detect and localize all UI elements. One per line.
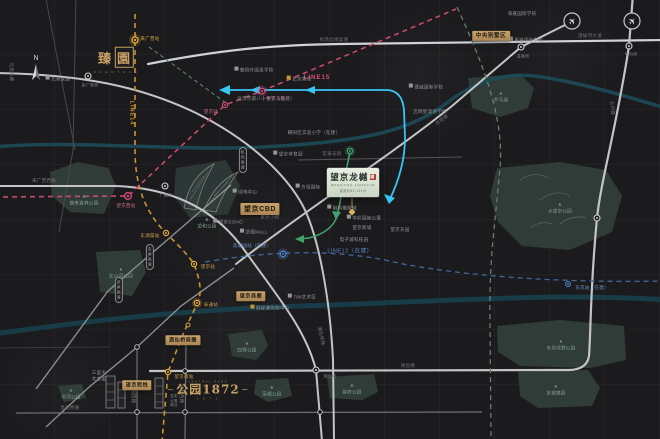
station-futong-text: 阜通站 — [204, 302, 218, 307]
poi-wangjingtiyuyuan-text: 望京体育园 — [279, 152, 303, 157]
project-spec: 建面约89-134㎡ — [340, 188, 367, 193]
badge-jingchenggaosu-1-text: 京承高速 — [148, 247, 153, 267]
tree-icon: ▲ — [197, 217, 216, 222]
poi-rongke-icon — [327, 205, 331, 209]
junction-guangshunqiao: 广顺桥 — [160, 192, 173, 197]
svg-text:N: N — [33, 55, 38, 62]
airport-icon-2: ✈ — [624, 13, 640, 29]
poi-kaidemall-text: 凯德MALL — [245, 230, 268, 235]
metro-spur — [149, 47, 226, 103]
poi-lvdizhongxin-icon — [233, 189, 237, 193]
airport-icon: ✈ — [564, 13, 580, 29]
poi-beiyuanjiayuan-text: 北苑家园 — [51, 77, 70, 82]
zhenyuan-subtitle: Z H E N Y U A N — [94, 69, 138, 73]
poi-fangheng-text: 方恒国际 — [301, 185, 320, 190]
badge-jingchenggaosu-1: 京承高速 — [146, 244, 154, 270]
poi-bashizhong-text: 北京市第八十中学（在建） — [237, 96, 295, 101]
tag-wangjingshangquan-text: 望京商圈 — [240, 293, 262, 299]
poi-fangheng-icon — [296, 184, 300, 188]
zhenyuan-char2: 園 — [115, 47, 134, 68]
location-map: ✈ ✈ N 望京龙樾 樾 WANGJING LONGYUE 建面约89-134㎡… — [0, 0, 660, 439]
tag-jiuxianqiaoshangquan-text: 酒仙桥商圈 — [169, 337, 197, 343]
tag-wangjingxiyue-text: 望京熙悦 — [126, 382, 148, 388]
poi-wangjingtiyuyuan-icon — [273, 151, 277, 155]
park-bahe: ▲坝河公园 — [61, 388, 80, 399]
junction-guangshunqiao-text: 广顺桥 — [160, 192, 173, 197]
road-wenyuhedadao-text: 温榆河大道 — [578, 33, 602, 38]
park1872-subtitle: 1 8 7 2 — [165, 397, 250, 401]
poi-wangjingtiyuyuan: 望京体育园 — [273, 151, 303, 158]
road-hongtaidongjie: 宏泰东街 — [322, 151, 341, 157]
station-laiguangying-text: 来广营站 — [140, 36, 159, 41]
junction-wenyuqiao: 温榆桥 — [517, 53, 530, 58]
poi-chaowai-school-icon — [234, 67, 238, 71]
poi-wangjingsoho: 望京SOHO — [213, 219, 243, 226]
poi-wangjingdongyuan-text: 望京东园 — [390, 227, 409, 232]
junction-weigouqiao-text: 苇沟桥 — [625, 51, 638, 56]
project-card[interactable]: 望京龙樾 樾 WANGJING LONGYUE 建面约89-134㎡ — [327, 168, 379, 197]
tree-icon: ▲ — [342, 383, 361, 388]
project-title-english: WANGJING LONGYUE — [331, 183, 375, 187]
poi-wangjingdongyuan: 望京东园 — [390, 227, 409, 233]
poi-bashizhong: 北京市第八十中学（在建） — [237, 96, 295, 102]
north-compass-icon: N — [32, 55, 40, 80]
park-luomahu: ▲罗马湖 — [494, 91, 508, 102]
poi-yidigang-icon — [250, 305, 254, 309]
poi-wangjingsoho-text: 望京SOHO — [219, 220, 243, 225]
park-jingchenghuaiyuan-text: 京城槐园 — [546, 390, 565, 395]
park-chaolai: ▲朝来森林公园 — [70, 194, 99, 205]
junction-wenyuqiao-text: 温榆桥 — [517, 53, 530, 58]
tree-icon: ▲ — [237, 341, 256, 346]
poi-shiyanxiaoxue: 朝阳区实验小学（在建） — [288, 130, 341, 136]
poi-dianzicheng: 电子城科技园 — [340, 237, 369, 243]
poi-rongke-text: 融科橄榄城 — [333, 206, 357, 211]
logo-park1872: CENTRAL PARK 公园1872 1 8 7 2 — [165, 379, 250, 400]
tag-wangjingcbd[interactable]: 望京CBD — [240, 203, 279, 215]
park-lidu: ▲丽都公园 — [262, 385, 281, 396]
junction-jiuxianqiao: 酒仙桥 — [324, 373, 337, 378]
poi-kaidemall: 凯德MALL — [240, 229, 268, 236]
poi-798: 798艺术区 — [288, 294, 316, 301]
park-luomahu-text: 罗马湖 — [494, 97, 508, 102]
tree-icon: ▲ — [494, 91, 508, 96]
park-side-text: 四得公园 — [237, 347, 256, 352]
poi-beiyuanjiayuan: 北苑家园 — [46, 76, 71, 83]
road-hongtaidongjie-text: 宏泰东街 — [322, 151, 341, 156]
poi-haijia: 海嘉国际学校 — [508, 11, 537, 17]
badge-jichanggaosu-text: 机场高速 — [241, 150, 246, 170]
badge-jingchenggaosu-2-text: 京承高速 — [117, 280, 122, 300]
poi-chaowai-school: 朝阳外国语学校 — [234, 67, 273, 74]
park1872-title: 公园1872 — [165, 383, 250, 396]
road-jiangtailu: 将台路 — [401, 363, 415, 369]
station-dongfeng-text: 东风站（在建） — [575, 285, 609, 290]
station-laiguangying: 来广营站 — [140, 36, 159, 42]
road-jichangbeixian-text: 机场北线高速 — [320, 37, 349, 42]
poi-wangjingxincheng: 望京新城 — [352, 225, 371, 231]
park-dongba-text: 东坝郊野公园 — [547, 345, 576, 350]
tree-icon: ▲ — [262, 385, 281, 390]
park-jiangfu: ▲将府公园 — [342, 383, 361, 394]
poi-kaidemall-icon — [240, 229, 244, 233]
logo-zhenyuan: 臻 園 Z H E N Y U A N — [94, 47, 138, 74]
junction-laiguangyingqiao-text: 来广营桥 — [81, 82, 98, 87]
label-line12: LINE12（在建） — [327, 248, 372, 255]
tree-icon: ▲ — [548, 202, 572, 207]
tree-icon: ▲ — [61, 388, 80, 393]
park-side: ▲四得公园 — [237, 341, 256, 352]
poi-haijia-text: 海嘉国际学校 — [508, 11, 537, 16]
poi-fangheng: 方恒国际 — [296, 184, 321, 191]
park-dongba: ▲东坝郊野公园 — [547, 339, 576, 350]
station-futong: 阜通站 — [204, 302, 218, 308]
poi-sanlitun: 三里屯 太古里 — [92, 370, 106, 382]
label-line14-text: LINE14 — [129, 101, 135, 126]
poi-chaowai-school-text: 朝阳外国语学校 — [240, 68, 274, 73]
poi-yidigang: 颐堤港购物中心 — [250, 305, 289, 312]
road-jichangbeixian: 机场北线高速 — [320, 37, 349, 43]
poi-dewei-icon — [409, 84, 413, 88]
road-liangmaqiaolu-text: 亮马桥路 — [60, 405, 79, 410]
poi-beijingxiangsong-text: 北京香颂 — [292, 77, 311, 82]
station-wangjing-l15: 望京站 — [204, 109, 218, 115]
junction-weigouqiao: 苇沟桥 — [625, 51, 638, 56]
poi-lvdizhongxin: 绿地中心 — [233, 189, 258, 196]
station-gaojiayuan-text: 高家园站（在建） — [233, 243, 271, 248]
station-wangjingnan-text: 望京南站 — [174, 374, 193, 379]
park-jiangfu-text: 将府公园 — [342, 389, 361, 394]
badge-jichanggaosu: 机场高速 — [239, 147, 247, 173]
project-seal-icon: 樾 — [370, 174, 376, 180]
park-dawangjing-text: 大望京公园 — [548, 208, 572, 213]
park-wanghe-text: 望和公园 — [197, 223, 216, 228]
tree-icon: ▲ — [109, 267, 133, 272]
road-beiyuandonglu-text: 北苑东路 — [9, 62, 14, 81]
tag-wangjingxiyue[interactable]: 望京熙悦 — [122, 380, 151, 390]
badge-jingchenggaosu-2: 京承高速 — [115, 277, 123, 303]
station-wangjing-l14-text: 望京站 — [201, 264, 215, 269]
tree-icon: ▲ — [547, 339, 576, 344]
tag-jiuxianqiaoshangquan[interactable]: 酒仙桥商圈 — [165, 335, 200, 345]
tag-zhongyangbieshuqu[interactable]: 中央别墅区 — [472, 31, 510, 41]
station-donghuqu-text: 东湖渠站 — [140, 233, 159, 238]
poi-wangjingxincheng-text: 望京新城 — [352, 225, 371, 230]
poi-beijingxiangsong: 北京香颂 — [287, 76, 312, 83]
station-dongfeng: 东风站（在建） — [575, 285, 609, 291]
tag-zhongyangbieshuqu-text: 中央别墅区 — [476, 32, 507, 38]
poi-lvdizhongxin-text: 绿地中心 — [238, 190, 257, 195]
road-laiguangyingxilu: 来广营西路 — [32, 178, 56, 184]
tree-icon: ▲ — [546, 384, 565, 389]
poi-shiyanxiaoxue-text: 朝阳区实验小学（在建） — [288, 130, 341, 135]
poi-huacai-text: 华彩国际公寓 — [352, 216, 381, 221]
metro-line17 — [457, 7, 501, 439]
park-beixiaohe: ▲北小河公园 — [109, 267, 133, 278]
project-title: 望京龙樾 — [330, 173, 368, 182]
poi-beiyuanjiayuan-icon — [46, 76, 50, 80]
park-chaolai-text: 朝来森林公园 — [70, 200, 99, 205]
road-wenyuhedadao: 温榆河大道 — [578, 33, 602, 39]
park-dawangjing: ▲大望京公园 — [548, 202, 572, 213]
tree-icon: ▲ — [70, 194, 99, 199]
zhenyuan-char1: 臻 — [98, 48, 113, 67]
poi-qingmiao: 青苗国际学校 — [509, 37, 543, 44]
station-wangjing-l15-text: 望京站 — [204, 109, 218, 114]
junction-jiuxianqiao-text: 酒仙桥 — [324, 373, 337, 378]
poi-qimingxing-text: 启明星双语学校 — [413, 109, 447, 114]
tag-wangjingcbd-text: 望京CBD — [244, 205, 276, 212]
station-wangjing-l14: 望京站 — [201, 264, 215, 270]
poi-qimingxing: 启明星双语学校 — [413, 109, 447, 115]
poi-798-text: 798艺术区 — [293, 295, 316, 300]
station-donghuqu: 东湖渠站 — [140, 233, 159, 239]
road-jiangtailu-text: 将台路 — [401, 363, 415, 368]
poi-dewei-text: 德威国际学校 — [414, 85, 443, 90]
road-beiyuandonglu: 北苑东路 — [8, 62, 14, 81]
park-lidu-text: 丽都公园 — [262, 391, 281, 396]
poi-sanlitun-text: 三里屯 太古里 — [92, 370, 106, 381]
poi-rongke: 融科橄榄城 — [327, 205, 357, 212]
poi-yidigang-text: 颐堤港购物中心 — [256, 306, 290, 311]
park-beixiaohe-text: 北小河公园 — [109, 273, 133, 278]
park-jingchenghuaiyuan: ▲京城槐园 — [546, 384, 565, 395]
poi-qingmiao-text: 青苗国际学校 — [514, 38, 543, 43]
poi-beijingxiangsong-icon — [287, 76, 291, 80]
poi-huacai-icon — [347, 215, 351, 219]
road-liangmaqiaolu: 亮马桥路 — [60, 405, 79, 411]
tag-wangjingshangquan[interactable]: 望京商圈 — [236, 291, 265, 301]
poi-dianzicheng-text: 电子城科技园 — [340, 237, 369, 242]
station-wangjingxi-text: 望京西站 — [116, 203, 135, 208]
park-wanghe: ▲望和公园 — [197, 217, 216, 228]
poi-huacai: 华彩国际公寓 — [347, 215, 381, 222]
label-line12-text: LINE12（在建） — [327, 248, 372, 254]
station-gaojiayuan: 高家园站（在建） — [233, 243, 271, 249]
poi-798-icon — [288, 294, 292, 298]
station-wangjingxi: 望京西站 — [116, 203, 135, 209]
park-bahe-text: 坝河公园 — [61, 394, 80, 399]
junction-laiguangyingqiao: 来广营桥 — [81, 82, 98, 87]
label-line14: LINE14 — [127, 101, 134, 126]
road-laiguangyingxilu-text: 来广营西路 — [32, 178, 56, 183]
poi-dewei: 德威国际学校 — [409, 84, 443, 91]
